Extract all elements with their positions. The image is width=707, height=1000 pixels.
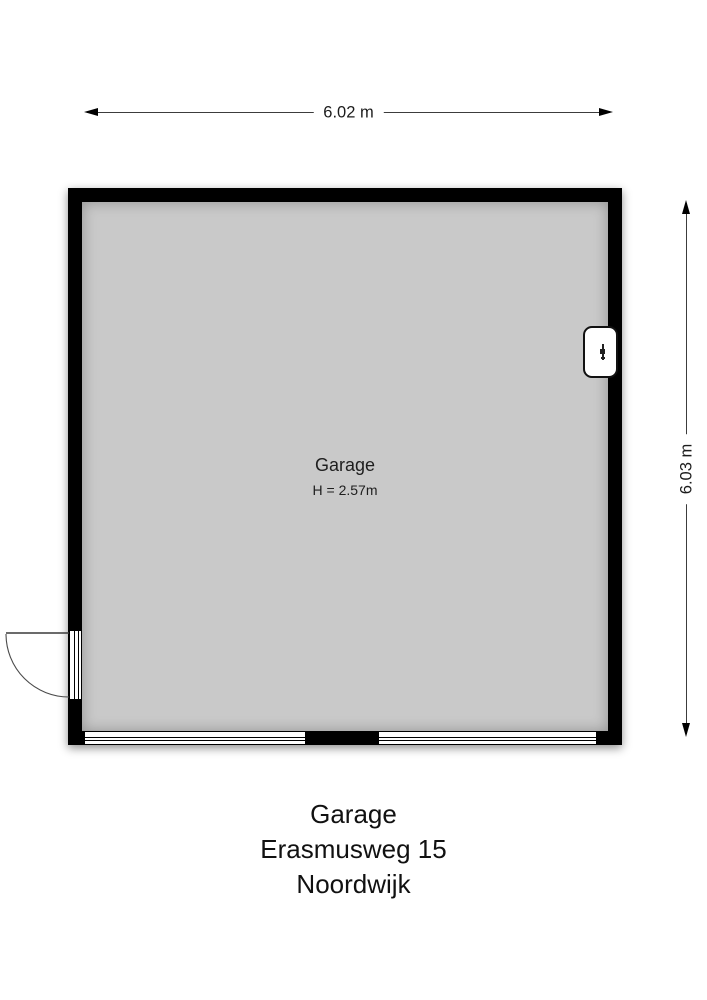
arrow-right-icon <box>599 108 613 116</box>
address-line-street: Erasmusweg 15 <box>0 832 707 867</box>
arrow-left-icon <box>84 108 98 116</box>
room-ceiling-height: H = 2.57m <box>82 482 608 498</box>
arrow-down-icon <box>682 723 690 737</box>
garage-building: Garage H = 2.57m <box>68 188 622 745</box>
room-name: Garage <box>82 455 608 476</box>
floorplan-canvas: 6.02 m 6.03 m Garage H = 2.57m <box>0 0 707 1000</box>
arrow-up-icon <box>682 200 690 214</box>
door-swing-arc <box>6 634 69 697</box>
dimension-width-label: 6.02 m <box>313 104 383 123</box>
garage-door-panel-left <box>84 731 306 745</box>
boiler-icon <box>599 343 607 361</box>
room-label: Garage H = 2.57m <box>82 455 608 498</box>
boiler-unit <box>583 326 618 378</box>
address-line-title: Garage <box>0 797 707 832</box>
dimension-height: 6.03 m <box>679 200 695 737</box>
dimension-height-label: 6.03 m <box>678 433 697 503</box>
door-swing <box>0 620 90 720</box>
garage-door-panel-right <box>378 731 597 745</box>
address-line-city: Noordwijk <box>0 867 707 902</box>
dimension-width: 6.02 m <box>84 105 613 121</box>
garage-floor: Garage H = 2.57m <box>82 202 608 731</box>
address-block: Garage Erasmusweg 15 Noordwijk <box>0 797 707 902</box>
